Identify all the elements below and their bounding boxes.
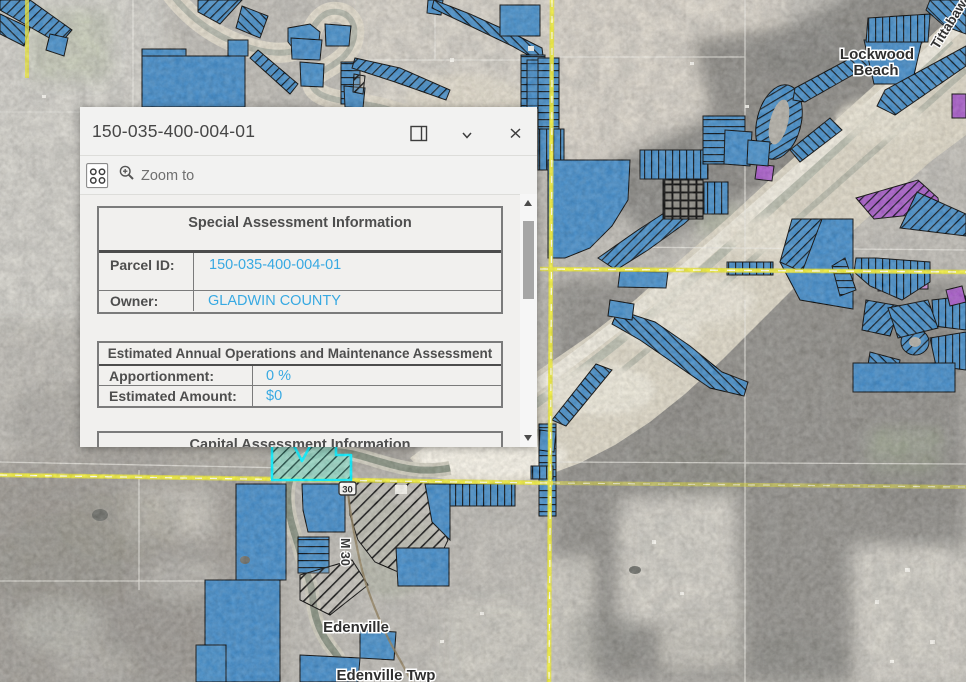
svg-text:Edenville: Edenville	[323, 619, 389, 636]
svg-text:Lockwood: Lockwood	[840, 46, 914, 63]
svg-text:Edenville Twp: Edenville Twp	[337, 667, 436, 682]
svg-text:Beach: Beach	[853, 62, 898, 79]
svg-text:M 30: M 30	[338, 538, 352, 566]
